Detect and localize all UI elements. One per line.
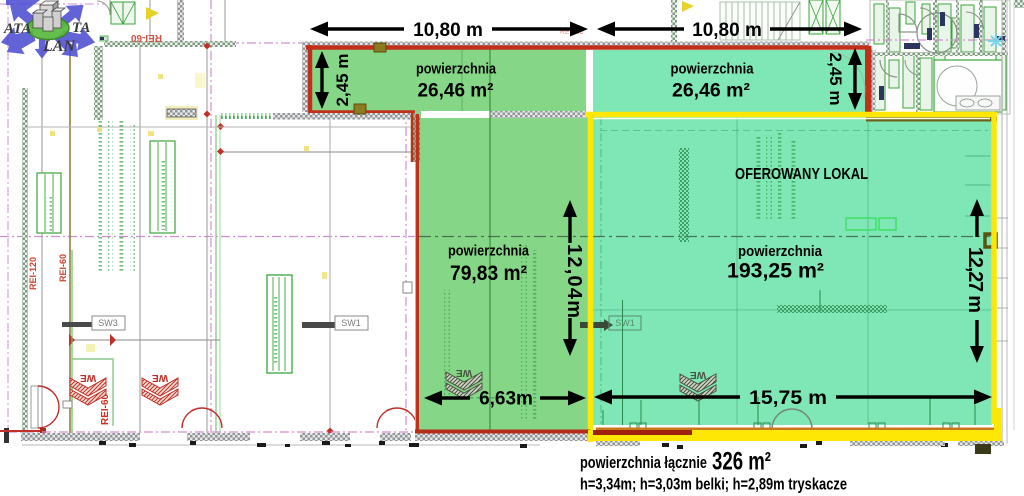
svg-text:REI-60: REI-60: [58, 254, 68, 282]
svg-text:SW1: SW1: [341, 318, 361, 328]
svg-text:6,63m: 6,63m: [479, 389, 533, 410]
svg-text:79,83 m²: 79,83 m²: [450, 262, 527, 285]
svg-text:2,45 m: 2,45 m: [333, 54, 352, 107]
svg-text:26,46 m²: 26,46 m²: [418, 80, 494, 102]
svg-text:powierzchnia: powierzchnia: [416, 62, 497, 78]
svg-text:10,80 m: 10,80 m: [692, 20, 762, 41]
svg-text:WE: WE: [690, 369, 706, 380]
svg-text:LAN: LAN: [42, 38, 76, 55]
svg-text:12,04m: 12,04m: [563, 244, 585, 318]
svg-text:SW1: SW1: [615, 318, 635, 328]
svg-text:10,80 m: 10,80 m: [413, 20, 483, 41]
svg-text:WE: WE: [456, 367, 472, 378]
svg-text:REI-60: REI-60: [100, 393, 111, 425]
svg-text:powierzchnia: powierzchnia: [738, 244, 823, 260]
svg-text:REI-120: REI-120: [28, 257, 38, 290]
svg-text:OFEROWANY LOKAL: OFEROWANY LOKAL: [735, 166, 868, 183]
svg-text:WE: WE: [152, 372, 168, 383]
svg-text:powierzchnia: powierzchnia: [448, 244, 530, 260]
svg-text:326 m²: 326 m²: [712, 448, 771, 476]
svg-text:SW3: SW3: [98, 318, 118, 328]
svg-text:2,45 m: 2,45 m: [826, 53, 845, 106]
svg-text:TA: TA: [72, 20, 90, 36]
svg-text:15,75 m: 15,75 m: [749, 388, 827, 409]
svg-text:26,46 m²: 26,46 m²: [672, 80, 750, 102]
svg-text:ATA: ATA: [3, 21, 32, 37]
svg-text:powierzchnia łącznie: powierzchnia łącznie: [580, 453, 707, 472]
svg-text:12,27 m: 12,27 m: [964, 247, 986, 313]
svg-text:h=3,34m; h=3,03m belki; h=2,89: h=3,34m; h=3,03m belki; h=2,89m tryskacz…: [580, 475, 847, 494]
svg-text:193,25 m²: 193,25 m²: [727, 260, 824, 283]
svg-text:powierzchnia: powierzchnia: [671, 62, 755, 78]
svg-text:REI-60: REI-60: [130, 32, 162, 43]
svg-text:WE: WE: [80, 372, 96, 383]
